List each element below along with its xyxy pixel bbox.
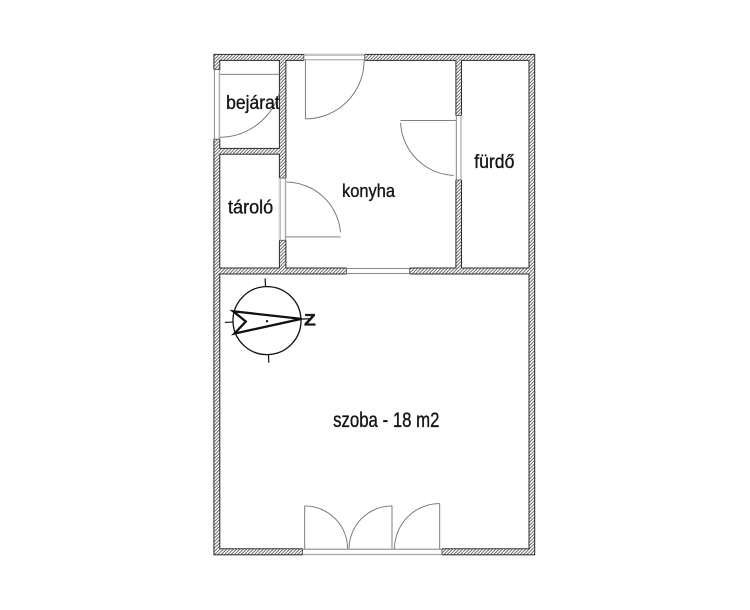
svg-text:bejárat: bejárat xyxy=(226,93,280,114)
svg-text:Z: Z xyxy=(304,312,316,330)
svg-text:szoba - 18 m2: szoba - 18 m2 xyxy=(333,409,439,432)
svg-text:konyha: konyha xyxy=(342,181,396,201)
svg-text:tároló: tároló xyxy=(228,196,273,218)
svg-text:fürdő: fürdő xyxy=(474,151,514,173)
